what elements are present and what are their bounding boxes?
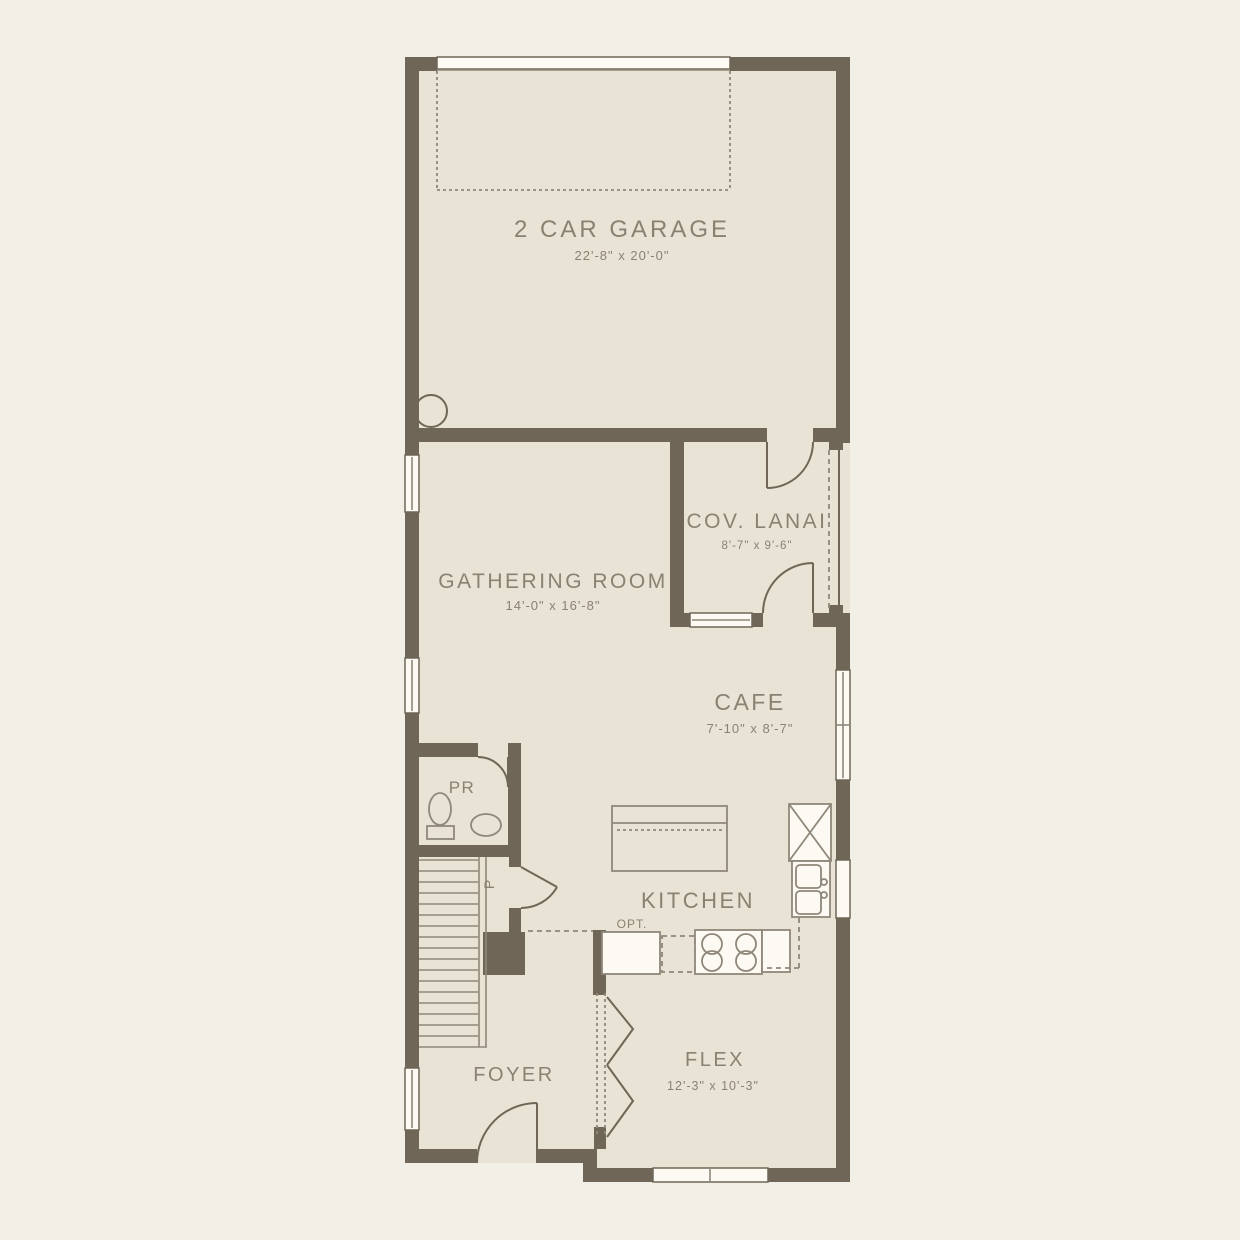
cafe-label: CAFE [714, 689, 785, 715]
cafe-dims: 7'-10" x 8'-7" [707, 721, 794, 736]
refrigerator-icon [602, 932, 660, 974]
kitchen-label: KITCHEN [641, 888, 755, 913]
gathering-label: GATHERING ROOM [438, 570, 667, 593]
pantry-label: P [481, 879, 497, 889]
garage-dims: 22'-8" x 20'-0" [575, 248, 670, 263]
powder-room-label: PR [449, 778, 476, 797]
kitchen-opt-label: OPT. [617, 917, 648, 931]
floor-plan: 2 CAR GARAGE 22'-8" x 20'-0" COV. LANAI … [0, 0, 1240, 1240]
counter [762, 930, 790, 972]
gathering-dims: 14'-0" x 16'-8" [506, 598, 601, 613]
flex-dims: 12'-3" x 10'-3" [667, 1079, 759, 1093]
lanai-label: COV. LANAI [687, 510, 828, 533]
garage-label: 2 CAR GARAGE [514, 216, 730, 243]
foyer-label: FOYER [473, 1064, 554, 1086]
kitchen-window [836, 860, 850, 918]
kitchen-sink-icon [792, 861, 830, 917]
flex-label: FLEX [685, 1049, 745, 1071]
garage-door [437, 57, 730, 69]
floor-plan-page: 2 CAR GARAGE 22'-8" x 20'-0" COV. LANAI … [0, 0, 1240, 1240]
lanai-dims: 8'-7" x 9'-6" [722, 540, 793, 552]
cafe-room: CAFE 7'-10" x 8'-7" [707, 689, 794, 736]
